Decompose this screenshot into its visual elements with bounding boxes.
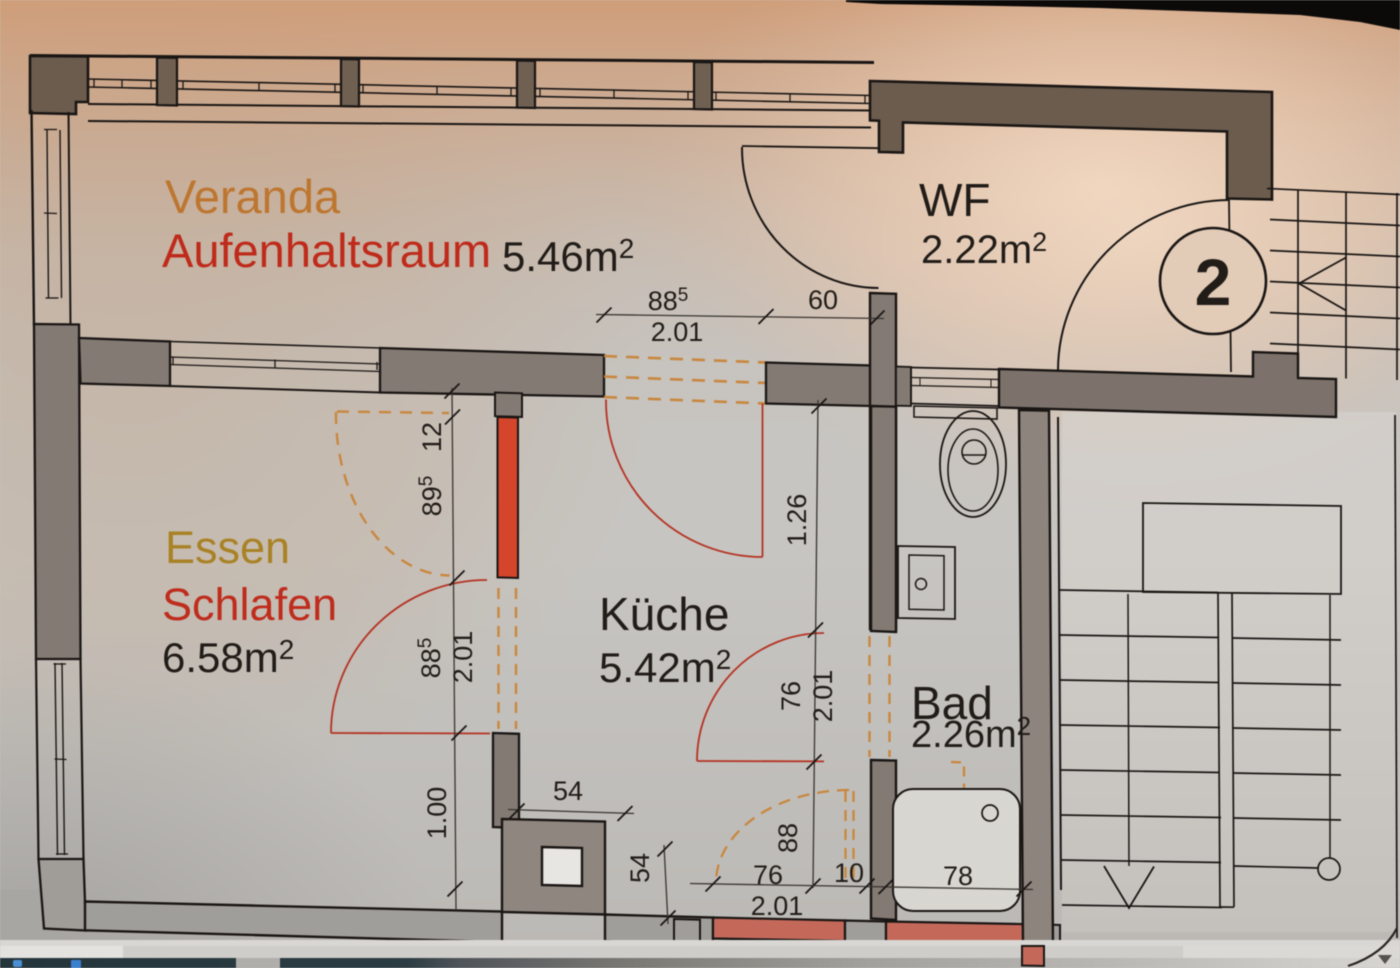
svg-text:5.42m2: 5.42m2 [599,644,731,691]
svg-text:2.01: 2.01 [448,631,478,684]
svg-text:78: 78 [943,861,973,891]
svg-text:6.58m2: 6.58m2 [162,634,294,681]
svg-text:1.26: 1.26 [782,494,812,547]
svg-text:2.26m2: 2.26m2 [911,711,1031,756]
svg-text:1.00: 1.00 [422,787,452,840]
svg-text:Schlafen: Schlafen [162,579,337,630]
svg-text:Essen: Essen [165,522,290,573]
svg-text:54: 54 [553,776,583,806]
svg-text:2.01: 2.01 [808,670,838,723]
svg-text:76: 76 [776,681,806,711]
svg-text:2.01: 2.01 [651,317,704,347]
svg-text:Küche: Küche [599,588,729,640]
svg-text:2.01: 2.01 [751,891,804,921]
svg-text:12: 12 [417,422,447,452]
svg-text:76: 76 [753,860,783,890]
svg-text:5.46m2: 5.46m2 [502,233,634,280]
svg-text:2.22m2: 2.22m2 [921,227,1047,272]
svg-text:WF: WF [919,174,991,226]
svg-text:88: 88 [773,823,803,853]
svg-text:54: 54 [625,853,655,883]
svg-text:2: 2 [1195,245,1232,319]
svg-text:Veranda: Veranda [165,170,341,223]
svg-text:10: 10 [834,858,864,888]
svg-text:60: 60 [808,285,838,315]
svg-text:Aufenhaltsraum: Aufenhaltsraum [162,224,491,277]
